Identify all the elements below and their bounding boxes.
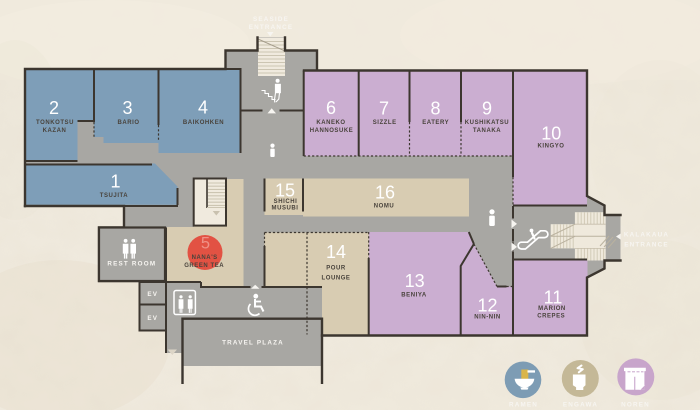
- svg-text:10: 10: [541, 124, 561, 144]
- svg-text:13: 13: [405, 271, 425, 291]
- svg-text:TRAVEL PLAZA: TRAVEL PLAZA: [222, 340, 284, 347]
- svg-text:16: 16: [375, 183, 395, 203]
- svg-text:5: 5: [201, 235, 210, 253]
- svg-text:ENTRANCE: ENTRANCE: [249, 24, 294, 31]
- svg-text:EATERY: EATERY: [422, 120, 449, 126]
- svg-text:NANA'S: NANA'S: [192, 255, 218, 261]
- svg-text:LOUNGE: LOUNGE: [322, 275, 351, 281]
- svg-text:8: 8: [430, 99, 440, 119]
- svg-text:9: 9: [482, 99, 492, 119]
- svg-text:KAZAN: KAZAN: [43, 128, 67, 134]
- svg-text:ENGAWA: ENGAWA: [563, 402, 598, 409]
- svg-text:15: 15: [275, 181, 295, 201]
- svg-text:7: 7: [379, 99, 389, 119]
- svg-text:6: 6: [326, 98, 336, 118]
- svg-text:HANNOSUKE: HANNOSUKE: [310, 128, 354, 134]
- svg-text:SEASIDE: SEASIDE: [253, 16, 289, 23]
- svg-text:MARION: MARION: [538, 306, 566, 312]
- svg-text:NIN-NIN: NIN-NIN: [474, 314, 501, 320]
- svg-text:POUR: POUR: [326, 265, 346, 271]
- svg-text:2: 2: [49, 98, 59, 118]
- svg-text:TONKOTSU: TONKOTSU: [36, 120, 74, 126]
- svg-text:KANEKO: KANEKO: [316, 120, 345, 126]
- svg-text:SHICHI: SHICHI: [274, 199, 298, 205]
- svg-text:REST ROOM: REST ROOM: [107, 261, 156, 268]
- svg-text:BENIYA: BENIYA: [401, 293, 427, 299]
- svg-text:3: 3: [122, 98, 132, 118]
- svg-text:MUSUBI: MUSUBI: [272, 206, 299, 212]
- svg-text:RAMEN: RAMEN: [509, 402, 538, 409]
- svg-text:11: 11: [544, 288, 563, 308]
- svg-text:KINGYO: KINGYO: [538, 143, 565, 149]
- svg-text:EV: EV: [147, 291, 158, 298]
- svg-text:TSUJITA: TSUJITA: [100, 193, 129, 199]
- svg-text:NOREN: NOREN: [621, 402, 650, 409]
- svg-text:1: 1: [110, 172, 120, 192]
- svg-text:EV: EV: [147, 315, 158, 322]
- svg-text:NOMU: NOMU: [374, 204, 395, 210]
- svg-text:4: 4: [198, 98, 208, 118]
- svg-text:GREEN TEA: GREEN TEA: [184, 263, 224, 269]
- svg-text:BAIKOHKEN: BAIKOHKEN: [183, 120, 224, 126]
- svg-text:12: 12: [477, 296, 497, 316]
- svg-text:ENTRANCE: ENTRANCE: [624, 242, 669, 249]
- svg-text:KALAKAUA: KALAKAUA: [624, 232, 669, 239]
- svg-text:BARIO: BARIO: [117, 120, 139, 126]
- svg-text:TANAKA: TANAKA: [473, 128, 501, 134]
- svg-text:KUSHIKATSU: KUSHIKATSU: [465, 120, 509, 126]
- svg-text:14: 14: [326, 242, 346, 262]
- svg-text:SIZZLE: SIZZLE: [373, 120, 397, 126]
- svg-text:CREPES: CREPES: [537, 314, 565, 320]
